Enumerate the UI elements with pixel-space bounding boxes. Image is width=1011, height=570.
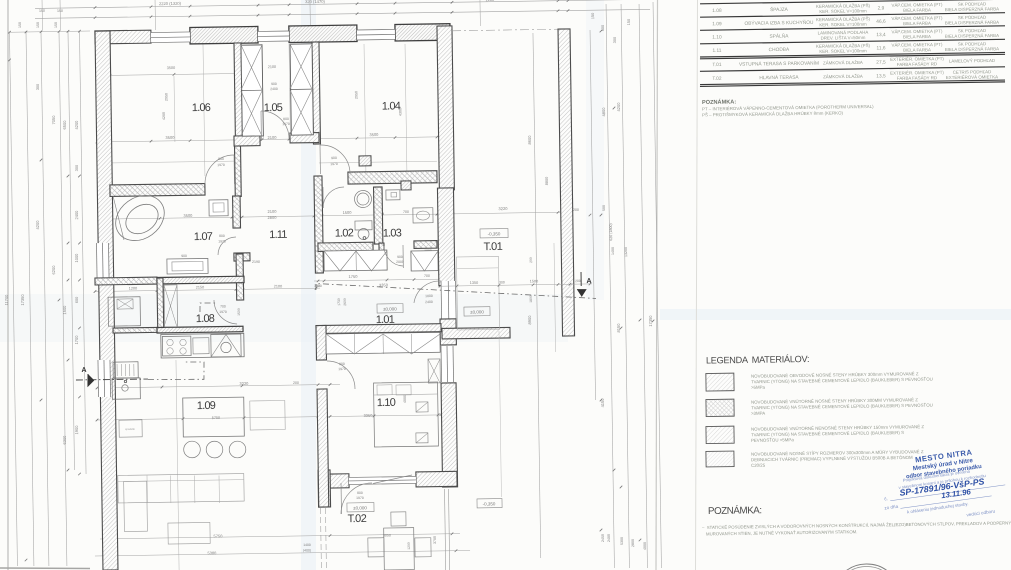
- svg-text:BIELA DISPERZNÁ FARBA: BIELA DISPERZNÁ FARBA: [945, 33, 999, 39]
- svg-text:1500: 1500: [530, 279, 539, 283]
- svg-text:1500: 1500: [343, 210, 353, 215]
- svg-text:700: 700: [424, 274, 430, 278]
- svg-text:A: A: [81, 367, 86, 374]
- svg-text:1970: 1970: [219, 310, 227, 314]
- svg-text:BIELA FARBA: BIELA FARBA: [903, 7, 931, 12]
- svg-text:1970: 1970: [218, 239, 226, 243]
- svg-text:2400: 2400: [270, 87, 278, 91]
- svg-text:1750: 1750: [348, 274, 358, 279]
- svg-text:SPÁLŇA: SPÁLŇA: [769, 32, 789, 39]
- svg-text:ZÁMKOVÁ DLAŽBA: ZÁMKOVÁ DLAŽBA: [823, 60, 863, 66]
- svg-text:LAMELOVÝ PODHĽAD: LAMELOVÝ PODHĽAD: [949, 58, 995, 64]
- svg-text:8900: 8900: [527, 315, 532, 325]
- svg-text:DEBNIACICH TVÁRNIC (PREMAC) VY: DEBNIACICH TVÁRNIC (PREMAC) VYPLNENÉ VÝS…: [751, 455, 913, 462]
- svg-text:-0,350: -0,350: [483, 501, 496, 506]
- svg-text:PŠ – PROTIŠMYKOVÁ KERAMICKÁ DL: PŠ – PROTIŠMYKOVÁ KERAMICKÁ DLAŽBA HRÚBK…: [702, 110, 844, 117]
- svg-text:1700: 1700: [74, 335, 79, 345]
- svg-text:4200: 4200: [35, 220, 40, 230]
- svg-text:200: 200: [529, 257, 533, 263]
- svg-text:T.02: T.02: [347, 513, 366, 525]
- svg-text:3500: 3500: [369, 132, 379, 137]
- svg-text:KER. SOKEL V=100mm: KER. SOKEL V=100mm: [819, 48, 867, 54]
- svg-text:1.05: 1.05: [264, 102, 283, 114]
- svg-text:1000: 1000: [74, 253, 79, 263]
- svg-text:C20/25: C20/25: [751, 463, 766, 468]
- svg-text:T.01: T.01: [712, 62, 721, 68]
- svg-text:1.02: 1.02: [335, 227, 354, 239]
- svg-text:1.11: 1.11: [712, 48, 721, 54]
- svg-text:150: 150: [627, 19, 631, 25]
- svg-text:11700: 11700: [4, 294, 9, 306]
- svg-text:3500: 3500: [165, 135, 175, 140]
- svg-text:17350: 17350: [648, 315, 653, 327]
- svg-text:900: 900: [331, 156, 337, 160]
- svg-text:>3MPA: >3MPA: [751, 411, 765, 416]
- svg-text:2,9: 2,9: [878, 5, 885, 11]
- svg-text:2800: 2800: [267, 215, 277, 220]
- svg-text:1.08: 1.08: [196, 313, 215, 325]
- svg-text:3220: 3220: [498, 206, 508, 211]
- svg-text:200: 200: [573, 208, 579, 212]
- svg-text:4200: 4200: [162, 112, 166, 120]
- svg-text:TVARNIC (YTONG) NA STAVEBNÉ CE: TVARNIC (YTONG) NA STAVEBNÉ CEMENTOVÉ LE…: [751, 430, 904, 437]
- svg-text:3050: 3050: [383, 533, 391, 537]
- svg-text:(400): (400): [303, 548, 311, 552]
- svg-text:11,6: 11,6: [876, 45, 885, 51]
- svg-text:ŠPAJZA: ŠPAJZA: [770, 6, 789, 13]
- svg-text:300: 300: [36, 84, 40, 90]
- svg-text:1000: 1000: [425, 294, 433, 298]
- svg-text:1970: 1970: [217, 163, 225, 167]
- svg-text:5750: 5750: [214, 533, 224, 538]
- svg-text:č.: č.: [884, 496, 888, 501]
- svg-text:PEVNOSŤOU >5MPa: PEVNOSŤOU >5MPa: [751, 437, 794, 443]
- svg-text:±0,000: ±0,000: [383, 306, 397, 311]
- svg-text:2220 (1320): 2220 (1320): [159, 1, 182, 6]
- svg-text:320 (1470): 320 (1470): [305, 0, 326, 4]
- svg-text:1.07: 1.07: [194, 231, 213, 243]
- svg-text:1.08: 1.08: [712, 8, 722, 14]
- svg-text:150: 150: [591, 13, 595, 19]
- svg-text:-0,350: -0,350: [488, 231, 501, 236]
- svg-text:800: 800: [219, 234, 225, 238]
- svg-text:6200: 6200: [51, 265, 56, 275]
- svg-text:2190: 2190: [252, 260, 260, 264]
- svg-text:900: 900: [397, 255, 403, 259]
- svg-text:VSTUPNÁ TERASA S PARKOVANÍM: VSTUPNÁ TERASA S PARKOVANÍM: [739, 60, 819, 68]
- svg-text:4800: 4800: [601, 107, 606, 117]
- svg-text:1.04: 1.04: [382, 100, 401, 112]
- svg-text:BIELA DISPERZNÁ FARBA: BIELA DISPERZNÁ FARBA: [945, 20, 999, 26]
- svg-text:1730: 1730: [337, 298, 341, 306]
- svg-text:2950: 2950: [164, 93, 168, 101]
- svg-text:POZNÁMKA:: POZNÁMKA:: [702, 98, 736, 106]
- svg-text:800: 800: [357, 491, 363, 495]
- svg-text:POZNÁMKA:: POZNÁMKA:: [708, 505, 762, 517]
- svg-text:1500: 1500: [237, 308, 241, 316]
- svg-text:150: 150: [36, 22, 40, 28]
- svg-text:150: 150: [54, 22, 58, 28]
- svg-text:spodidlo: spodidlo: [125, 427, 135, 431]
- svg-text:2950: 2950: [354, 91, 358, 99]
- svg-text:900: 900: [271, 82, 277, 86]
- svg-text:BIELA FARBA: BIELA FARBA: [903, 21, 931, 26]
- svg-text:2100: 2100: [267, 135, 277, 140]
- svg-text:CHODBA: CHODBA: [769, 47, 790, 53]
- svg-text:1350: 1350: [470, 281, 479, 285]
- svg-text:3350: 3350: [364, 413, 374, 418]
- svg-text:T.01: T.01: [483, 241, 502, 253]
- svg-text:5380: 5380: [207, 550, 217, 555]
- svg-text:4150: 4150: [600, 398, 605, 408]
- svg-text:2280: 2280: [486, 0, 495, 2]
- svg-text:1.09: 1.09: [712, 21, 722, 27]
- svg-text:1400: 1400: [611, 247, 615, 255]
- svg-text:1500: 1500: [62, 305, 67, 315]
- svg-text:200: 200: [575, 279, 581, 283]
- svg-text:1.06: 1.06: [192, 102, 211, 114]
- svg-text:>5MPa: >5MPa: [751, 385, 766, 390]
- svg-text:±0,000: ±0,000: [353, 505, 367, 510]
- svg-text:1.01: 1.01: [376, 314, 395, 326]
- svg-text:1.10: 1.10: [712, 34, 722, 40]
- svg-text:2100: 2100: [267, 209, 277, 214]
- svg-text:1.09: 1.09: [197, 400, 216, 412]
- svg-text:A: A: [586, 278, 591, 285]
- svg-text:EXTERIÉROVÁ OMIETKA: EXTERIÉROVÁ OMIETKA: [946, 74, 998, 80]
- svg-text:OBÝVACIA IZBA S KUCHYŇOU: OBÝVACIA IZBA S KUCHYŇOU: [744, 19, 814, 27]
- svg-text:700: 700: [403, 210, 409, 214]
- svg-text:KER. SOKEL V=100mm: KER. SOKEL V=100mm: [818, 0, 868, 1]
- svg-text:2000: 2000: [396, 260, 404, 264]
- svg-text:1800: 1800: [529, 295, 533, 303]
- svg-text:1.11: 1.11: [269, 229, 287, 241]
- svg-text:HLAVNÁ TERASA: HLAVNÁ TERASA: [759, 74, 799, 82]
- svg-text:900: 900: [181, 254, 187, 258]
- svg-text:2800: 2800: [631, 539, 635, 547]
- svg-text:46,6: 46,6: [876, 19, 886, 25]
- svg-text:150: 150: [18, 22, 22, 28]
- svg-text:700: 700: [220, 304, 226, 308]
- svg-text:LEGENDA MATERIÁLOV:: LEGENDA MATERIÁLOV:: [706, 354, 809, 366]
- svg-text:17350: 17350: [20, 294, 25, 306]
- svg-text:300: 300: [613, 37, 617, 43]
- svg-text:1970: 1970: [356, 496, 364, 500]
- svg-text:2400: 2400: [74, 210, 79, 220]
- svg-text:8800: 8800: [545, 177, 549, 186]
- svg-text:BIELA DISPERZNÁ FARBA: BIELA DISPERZNÁ FARBA: [945, 46, 999, 52]
- svg-text:BIELA FARBA: BIELA FARBA: [903, 47, 931, 52]
- svg-text:FARBA FASÁDY RD: FARBA FASÁDY RD: [897, 61, 937, 67]
- svg-text:1970: 1970: [330, 162, 338, 166]
- svg-text:13200: 13200: [624, 247, 628, 257]
- svg-text:zo dňa: zo dňa: [884, 504, 899, 511]
- svg-text:2600: 2600: [343, 298, 347, 306]
- svg-text:2100: 2100: [274, 284, 283, 288]
- svg-text:600: 600: [75, 297, 79, 303]
- svg-text:620 (1800): 620 (1800): [609, 223, 613, 240]
- svg-text:3220: 3220: [239, 381, 249, 386]
- svg-text:3500: 3500: [183, 213, 193, 218]
- svg-text:4000: 4000: [643, 542, 647, 550]
- svg-text:vedúci odboru: vedúci odboru: [966, 508, 996, 517]
- svg-text:4200: 4200: [616, 102, 621, 112]
- svg-text:2400: 2400: [425, 300, 433, 304]
- svg-text:DREV. LIŠTA V=50mm: DREV. LIŠTA V=50mm: [821, 35, 866, 41]
- svg-text:1200: 1200: [407, 542, 411, 550]
- svg-text:5300: 5300: [620, 537, 624, 545]
- svg-text:200: 200: [293, 381, 299, 385]
- svg-text:1.03: 1.03: [383, 227, 402, 239]
- svg-text:1400: 1400: [303, 543, 311, 547]
- svg-text:800: 800: [283, 117, 289, 121]
- svg-text:MUROVANÝCH STIEN, JE NUTNÉ VYK: MUROVANÝCH STIEN, JE NUTNÉ VYKONAŤ AUTOR…: [706, 529, 858, 536]
- svg-text:5750: 5750: [212, 416, 221, 420]
- svg-text:KER. SOKEL V=100mm: KER. SOKEL V=100mm: [819, 22, 867, 28]
- svg-text:6300: 6300: [62, 435, 67, 445]
- svg-text:4000: 4000: [403, 395, 407, 403]
- svg-text:1200: 1200: [129, 286, 138, 290]
- svg-text:13,4: 13,4: [876, 32, 886, 38]
- svg-text:BIELA DISPERZNÁ FARBA: BIELA DISPERZNÁ FARBA: [945, 6, 999, 12]
- svg-text:500: 500: [602, 205, 606, 211]
- svg-text:8600: 8600: [527, 135, 532, 145]
- svg-text:300: 300: [75, 165, 79, 171]
- svg-text:BIELA FARBA: BIELA FARBA: [903, 34, 931, 39]
- svg-text:2400: 2400: [607, 534, 611, 542]
- svg-text:6500: 6500: [62, 120, 67, 130]
- svg-text:8150: 8150: [616, 323, 621, 333]
- svg-text:3500: 3500: [167, 66, 176, 70]
- svg-text:1.10: 1.10: [377, 397, 396, 409]
- svg-text:2150: 2150: [196, 285, 205, 289]
- svg-text:4200: 4200: [74, 120, 79, 130]
- svg-text:KER. SOKEL V=100mm: KER. SOKEL V=100mm: [819, 8, 867, 14]
- svg-text:7050: 7050: [51, 115, 56, 125]
- svg-text:1900: 1900: [74, 425, 79, 435]
- svg-text:380: 380: [314, 284, 320, 288]
- svg-text:2100: 2100: [268, 65, 277, 69]
- svg-text:±0,000: ±0,000: [470, 309, 484, 314]
- svg-text:27,5: 27,5: [876, 60, 886, 66]
- svg-text:2450: 2450: [601, 534, 605, 542]
- svg-text:300: 300: [499, 280, 505, 284]
- svg-text:ZÁMKOVÁ DLAŽBA: ZÁMKOVÁ DLAŽBA: [823, 74, 863, 80]
- svg-text:3700: 3700: [433, 536, 437, 544]
- svg-text:13,5: 13,5: [876, 73, 886, 79]
- svg-text:T.02: T.02: [712, 76, 721, 82]
- svg-text:FARBA FASÁDY RD: FARBA FASÁDY RD: [897, 75, 937, 81]
